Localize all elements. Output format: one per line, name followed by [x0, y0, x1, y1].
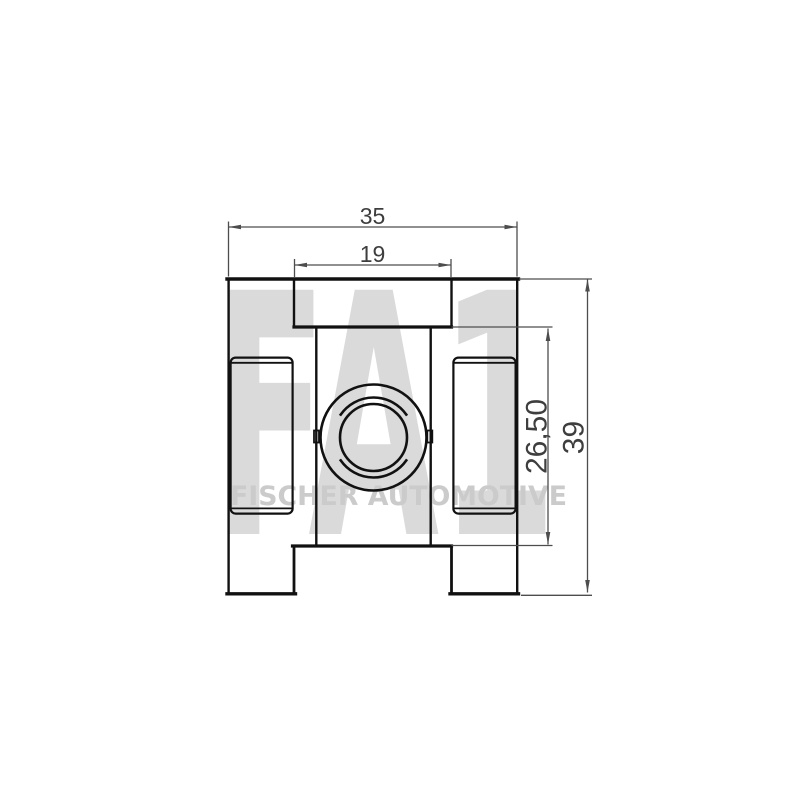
- dimension-label-inner-height: 26,50: [521, 399, 554, 474]
- arrowhead-top: [585, 279, 590, 292]
- dimension-label-inner-width: 19: [360, 241, 386, 267]
- dimension-label-total-width: 35: [360, 203, 386, 229]
- dimension-label-total-height: 39: [558, 421, 591, 454]
- technical-drawing-page: FA1 FISCHER AUTOMOTIVE: [0, 0, 800, 800]
- arrowhead-bottom: [585, 580, 590, 593]
- watermark-logo-text: FA1: [212, 224, 557, 614]
- watermark: FA1 FISCHER AUTOMOTIVE: [212, 224, 567, 614]
- technical-drawing-canvas: FA1 FISCHER AUTOMOTIVE: [0, 0, 800, 800]
